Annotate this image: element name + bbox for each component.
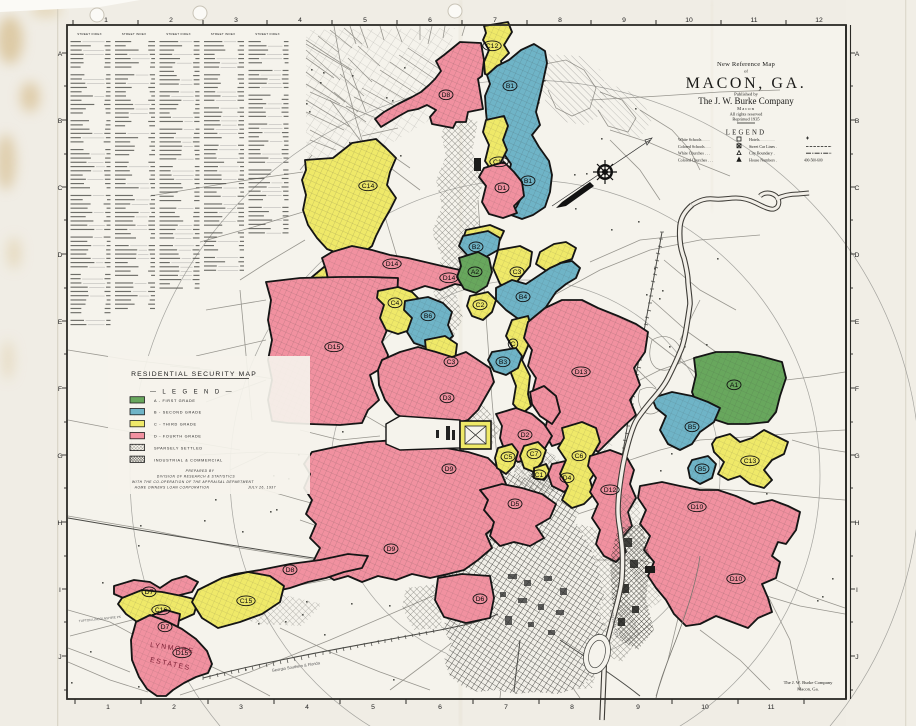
svg-text:A: A	[58, 51, 63, 58]
svg-text:J: J	[855, 654, 858, 661]
svg-text:C4: C4	[391, 300, 400, 307]
svg-text:STREET INDEX: STREET INDEX	[122, 32, 147, 36]
svg-text:C16: C16	[155, 607, 168, 614]
svg-text:B4: B4	[519, 294, 528, 301]
svg-text:D4: D4	[563, 475, 572, 482]
svg-text:4: 4	[298, 17, 302, 24]
svg-text:White Schools . . . .: White Schools . . . .	[678, 137, 709, 142]
svg-text:B5: B5	[688, 424, 697, 431]
svg-text:House Numbers .: House Numbers .	[749, 157, 777, 162]
svg-text:WITH THE CO-OPERATION OF THE A: WITH THE CO-OPERATION OF THE APPRAISAL D…	[132, 480, 254, 484]
svg-text:B5: B5	[698, 466, 707, 473]
svg-text:C: C	[58, 185, 63, 192]
svg-text:White Churches . . .: White Churches . . .	[678, 151, 710, 156]
svg-text:G: G	[57, 453, 62, 460]
svg-text:B3: B3	[499, 359, 508, 366]
svg-text:1: 1	[106, 704, 110, 711]
svg-text:Reprinted 1935: Reprinted 1935	[732, 117, 760, 122]
svg-text:11: 11	[750, 17, 757, 24]
svg-text:7: 7	[493, 17, 497, 24]
svg-text:B6: B6	[424, 313, 433, 320]
svg-text:C14: C14	[362, 183, 375, 190]
svg-text:HOME OWNERS LOAN CORPORATION: HOME OWNERS LOAN CORPORATION	[135, 486, 210, 490]
svg-text:Street Car Lines .: Street Car Lines .	[749, 144, 777, 149]
svg-text:D12: D12	[604, 487, 617, 494]
svg-text:D15: D15	[328, 344, 341, 351]
svg-text:STREET INDEX: STREET INDEX	[77, 32, 102, 36]
svg-text:D10: D10	[691, 504, 704, 511]
svg-text:D8: D8	[286, 567, 295, 574]
svg-text:D7: D7	[145, 589, 154, 596]
svg-text:C: C	[511, 341, 516, 348]
svg-text:New Reference Map: New Reference Map	[717, 61, 775, 68]
svg-text:C - THIRD GRADE: C - THIRD GRADE	[154, 423, 197, 427]
svg-text:B2: B2	[472, 244, 481, 251]
svg-text:City Boundary .: City Boundary .	[749, 151, 775, 156]
svg-text:B1: B1	[524, 178, 533, 185]
svg-text:STREET INDEX: STREET INDEX	[166, 32, 191, 36]
svg-text:C13: C13	[744, 458, 757, 465]
svg-text:JULY 26, 1937: JULY 26, 1937	[247, 486, 276, 490]
svg-text:5: 5	[371, 704, 375, 711]
svg-text:10: 10	[701, 704, 709, 711]
svg-text:D6: D6	[476, 596, 485, 603]
svg-text:12: 12	[815, 17, 823, 24]
svg-text:A1: A1	[730, 382, 739, 389]
svg-text:D14: D14	[386, 261, 399, 268]
svg-text:PREPARED BY: PREPARED BY	[186, 469, 215, 473]
svg-text:10: 10	[685, 17, 693, 24]
svg-text:A - FIRST GRADE: A - FIRST GRADE	[154, 399, 196, 403]
svg-text:C2: C2	[476, 302, 485, 309]
svg-text:MACON, GA.: MACON, GA.	[686, 75, 807, 92]
svg-text:E: E	[855, 319, 860, 326]
svg-text:3: 3	[234, 17, 238, 24]
svg-text:C7: C7	[530, 451, 539, 458]
svg-text:— L E G E N D —: — L E G E N D —	[150, 390, 234, 396]
svg-text:D7: D7	[161, 624, 170, 631]
svg-text:D9: D9	[387, 546, 396, 553]
svg-text:C12: C12	[486, 43, 499, 50]
svg-text:6: 6	[438, 704, 442, 711]
svg-text:D8: D8	[442, 92, 451, 99]
svg-text:1: 1	[104, 17, 108, 24]
svg-text:The J. W. Burke Company: The J. W. Burke Company	[784, 680, 833, 685]
svg-text:6: 6	[428, 17, 432, 24]
svg-text:4: 4	[305, 704, 309, 711]
svg-text:B1: B1	[506, 83, 515, 90]
svg-text:9: 9	[636, 704, 640, 711]
svg-text:D - FOURTH GRADE: D - FOURTH GRADE	[154, 435, 202, 439]
svg-text:D1: D1	[498, 185, 507, 192]
svg-text:F: F	[58, 386, 62, 393]
svg-text:A2: A2	[471, 269, 480, 276]
svg-text:8: 8	[558, 17, 562, 24]
svg-text:E: E	[58, 319, 63, 326]
svg-text:Colored Churches . . .: Colored Churches . . .	[678, 157, 713, 162]
svg-text:D: D	[58, 252, 63, 259]
svg-text:F: F	[855, 386, 859, 393]
svg-text:400-500-600: 400-500-600	[804, 158, 823, 162]
svg-text:C6: C6	[575, 453, 584, 460]
svg-text:The J. W. Burke Company: The J. W. Burke Company	[698, 96, 794, 106]
svg-text:D: D	[855, 252, 860, 259]
svg-text:I: I	[856, 587, 858, 594]
svg-text:of: of	[744, 69, 748, 74]
svg-text:I: I	[59, 587, 61, 594]
svg-text:B: B	[58, 118, 63, 125]
svg-text:B: B	[855, 118, 860, 125]
svg-text:STREET INDEX: STREET INDEX	[211, 32, 236, 36]
svg-text:C15: C15	[240, 598, 253, 605]
svg-text:Macon: Macon	[737, 106, 755, 111]
svg-text:H: H	[58, 520, 63, 527]
svg-text:A: A	[855, 51, 860, 58]
svg-text:C: C	[855, 185, 860, 192]
svg-text:Hotels. . . . . . . .: Hotels. . . . . . . .	[749, 137, 774, 142]
svg-text:D9: D9	[445, 466, 454, 473]
svg-text:5: 5	[363, 17, 367, 24]
svg-text:8: 8	[570, 704, 574, 711]
svg-text:D3: D3	[443, 395, 452, 402]
svg-text:RESIDENTIAL SECURITY MAP: RESIDENTIAL SECURITY MAP	[131, 371, 257, 378]
svg-text:11: 11	[767, 704, 774, 711]
svg-text:Colored Schools . . .: Colored Schools . . .	[678, 144, 711, 149]
svg-text:9: 9	[622, 17, 626, 24]
svg-text:C3: C3	[513, 269, 522, 276]
svg-text:D10: D10	[730, 576, 743, 583]
svg-text:B - SECOND GRADE: B - SECOND GRADE	[154, 411, 202, 415]
svg-text:INDUSTRIAL & COMMERCIAL: INDUSTRIAL & COMMERCIAL	[154, 458, 223, 462]
svg-text:STREET INDEX: STREET INDEX	[255, 32, 280, 36]
svg-text:D14: D14	[443, 275, 456, 282]
svg-text:J: J	[58, 654, 61, 661]
svg-text:3: 3	[239, 704, 243, 711]
svg-text:SPARSELY SETTLED: SPARSELY SETTLED	[154, 447, 203, 451]
svg-text:C1: C1	[535, 472, 544, 479]
svg-text:C3: C3	[447, 359, 456, 366]
svg-text:2: 2	[172, 704, 176, 711]
svg-text:C11: C11	[493, 159, 505, 166]
svg-text:DIVISION OF RESEARCH & STATIST: DIVISION OF RESEARCH & STATISTICS	[157, 475, 236, 479]
svg-text:G: G	[854, 453, 859, 460]
svg-text:2: 2	[169, 17, 173, 24]
svg-text:C5: C5	[504, 454, 513, 461]
svg-text:7: 7	[504, 704, 508, 711]
svg-text:D2: D2	[521, 432, 530, 439]
svg-text:D13: D13	[575, 369, 588, 376]
svg-text:D5: D5	[511, 501, 520, 508]
svg-text:LEGEND: LEGEND	[726, 130, 766, 137]
svg-text:H: H	[855, 520, 860, 527]
